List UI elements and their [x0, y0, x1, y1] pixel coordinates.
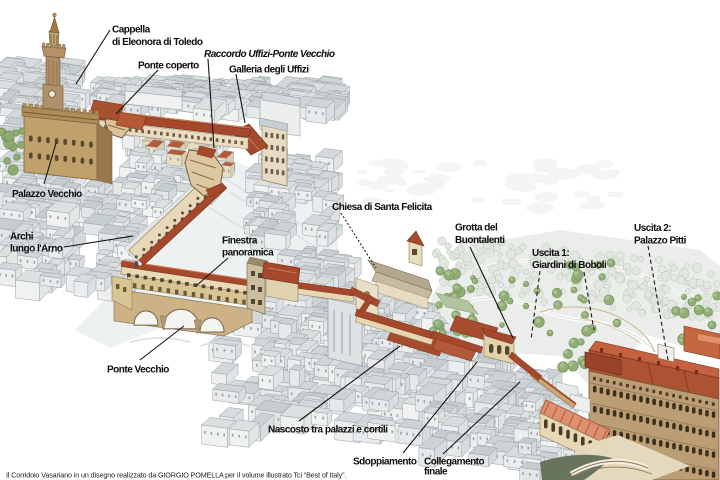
svg-text:Buontalenti: Buontalenti	[455, 235, 505, 246]
svg-text:Finestra: Finestra	[222, 236, 258, 247]
svg-text:Uscita 2:: Uscita 2:	[634, 223, 671, 234]
svg-text:Archi: Archi	[10, 232, 34, 243]
svg-text:di Eleonora di Toledo: di Eleonora di Toledo	[112, 37, 203, 48]
svg-text:Giardini di Boboli: Giardini di Boboli	[532, 260, 607, 271]
svg-text:Palazzo Vecchio: Palazzo Vecchio	[12, 189, 82, 200]
svg-text:Uscita 1:: Uscita 1:	[532, 248, 569, 259]
svg-text:Sdoppiamento: Sdoppiamento	[353, 457, 417, 468]
svg-text:Ponte coperto: Ponte coperto	[138, 61, 199, 72]
svg-text:Grotta del: Grotta del	[455, 223, 498, 234]
svg-text:Galleria degli Uffizi: Galleria degli Uffizi	[229, 65, 309, 76]
svg-text:Chiesa di Santa Felicita: Chiesa di Santa Felicita	[332, 202, 433, 213]
svg-text:Cappella: Cappella	[112, 25, 151, 36]
svg-text:Il Corridoio Vasariano in un d: Il Corridoio Vasariano in un disegno rea…	[6, 471, 346, 480]
svg-text:Nascosto tra palazzi e cortili: Nascosto tra palazzi e cortili	[268, 425, 388, 436]
svg-text:lungo l'Arno: lungo l'Arno	[10, 244, 63, 255]
svg-text:finale: finale	[424, 467, 448, 478]
svg-text:Palazzo Pitti: Palazzo Pitti	[634, 236, 687, 247]
svg-text:panoramica: panoramica	[222, 248, 274, 259]
svg-text:Raccordo Uffizi-Ponte Vecchio: Raccordo Uffizi-Ponte Vecchio	[204, 49, 335, 60]
svg-text:Ponte Vecchio: Ponte Vecchio	[107, 365, 169, 376]
